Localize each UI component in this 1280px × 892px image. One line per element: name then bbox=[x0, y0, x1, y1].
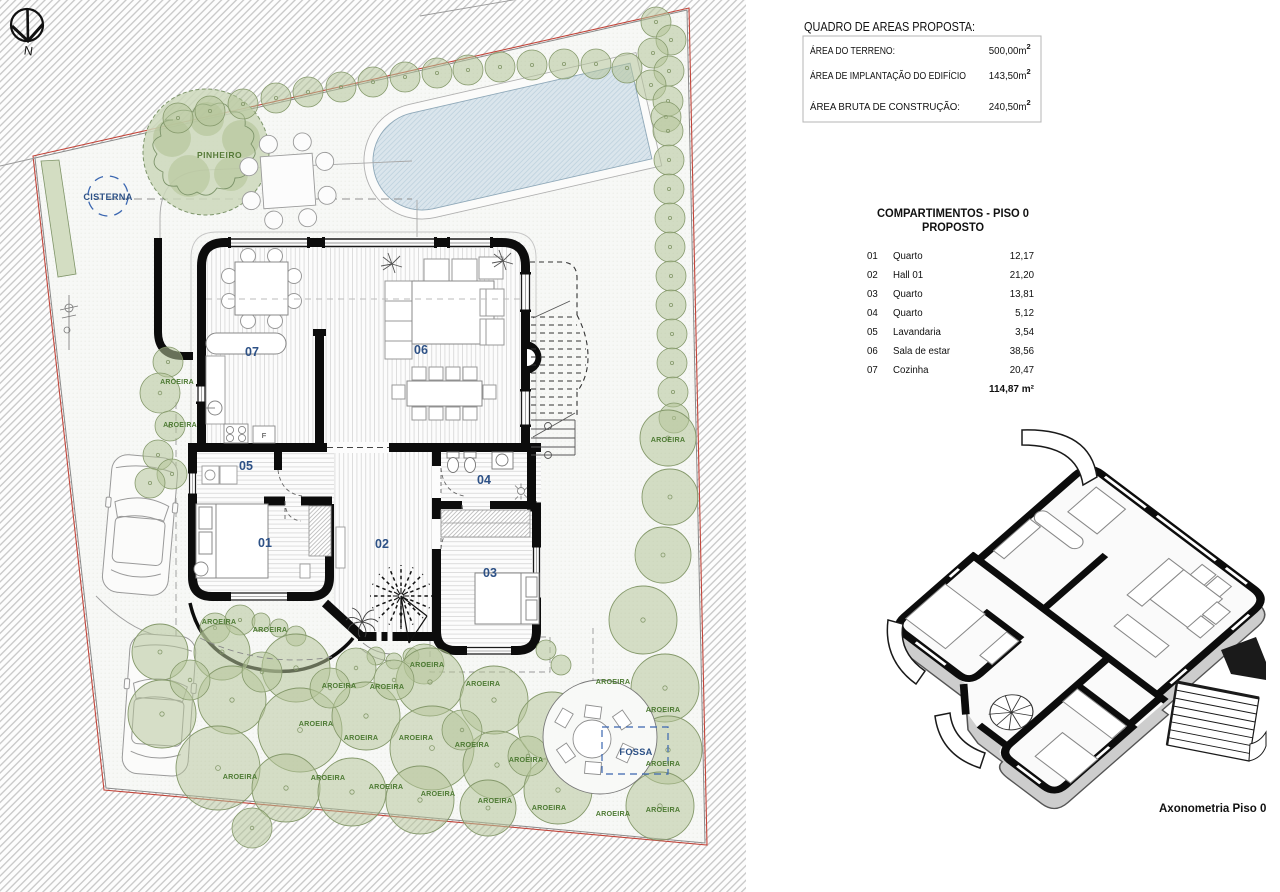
svg-text:AROEIRA: AROEIRA bbox=[596, 809, 631, 818]
svg-text:Lavandaria: Lavandaria bbox=[893, 327, 942, 338]
svg-text:Sala de estar: Sala de estar bbox=[893, 346, 951, 357]
svg-text:AROEIRA: AROEIRA bbox=[163, 422, 197, 429]
svg-text:ÁREA BRUTA DE CONSTRUÇÃO:: ÁREA BRUTA DE CONSTRUÇÃO: bbox=[810, 102, 960, 113]
svg-text:Quarto: Quarto bbox=[893, 289, 923, 300]
svg-text:PROPOSTO: PROPOSTO bbox=[922, 222, 984, 234]
svg-text:AROEIRA: AROEIRA bbox=[651, 435, 686, 444]
svg-text:AROEIRA: AROEIRA bbox=[253, 625, 288, 634]
svg-text:21,20: 21,20 bbox=[1010, 270, 1035, 281]
svg-text:38,56: 38,56 bbox=[1010, 346, 1034, 357]
svg-text:Quarto: Quarto bbox=[893, 251, 923, 262]
svg-text:AROEIRA: AROEIRA bbox=[509, 755, 544, 764]
svg-text:13,81: 13,81 bbox=[1010, 289, 1034, 300]
svg-text:FOSSA: FOSSA bbox=[619, 747, 652, 757]
svg-text:2: 2 bbox=[1027, 67, 1031, 76]
svg-text:AROEIRA: AROEIRA bbox=[344, 733, 379, 742]
svg-text:2: 2 bbox=[1027, 42, 1031, 51]
svg-text:3,54: 3,54 bbox=[1015, 327, 1034, 338]
svg-text:05: 05 bbox=[867, 327, 878, 338]
svg-text:AROEIRA: AROEIRA bbox=[455, 740, 490, 749]
svg-text:04: 04 bbox=[477, 473, 491, 487]
svg-text:03: 03 bbox=[867, 289, 878, 300]
svg-text:01: 01 bbox=[867, 251, 878, 262]
svg-text:AROEIRA: AROEIRA bbox=[410, 660, 445, 669]
svg-text:03: 03 bbox=[483, 566, 497, 580]
svg-text:QUADRO DE AREAS PROPOSTA:: QUADRO DE AREAS PROPOSTA: bbox=[804, 19, 975, 34]
svg-text:AROEIRA: AROEIRA bbox=[421, 789, 456, 798]
svg-text:143,50m: 143,50m bbox=[989, 71, 1027, 82]
svg-text:ÁREA DE IMPLANTAÇÃO DO EDIFÍCI: ÁREA DE IMPLANTAÇÃO DO EDIFÍCIO bbox=[810, 71, 966, 82]
svg-text:AROEIRA: AROEIRA bbox=[466, 679, 501, 688]
svg-text:AROEIRA: AROEIRA bbox=[399, 733, 434, 742]
svg-text:AROEIRA: AROEIRA bbox=[311, 773, 346, 782]
svg-text:12,17: 12,17 bbox=[1010, 251, 1034, 262]
svg-text:AROEIRA: AROEIRA bbox=[646, 705, 681, 714]
svg-text:AROEIRA: AROEIRA bbox=[596, 677, 631, 686]
svg-text:COMPARTIMENTOS - PISO 0: COMPARTIMENTOS - PISO 0 bbox=[877, 208, 1029, 220]
svg-text:Hall 01: Hall 01 bbox=[893, 270, 923, 281]
svg-text:2: 2 bbox=[1027, 98, 1031, 107]
svg-text:Axonometria Piso 0: Axonometria Piso 0 bbox=[1159, 803, 1266, 815]
svg-text:AROEIRA: AROEIRA bbox=[370, 682, 405, 691]
svg-text:02: 02 bbox=[867, 270, 878, 281]
svg-text:Quarto: Quarto bbox=[893, 308, 923, 319]
svg-text:114,87 m²: 114,87 m² bbox=[989, 384, 1035, 395]
svg-text:F: F bbox=[262, 431, 267, 440]
svg-text:240,50m: 240,50m bbox=[989, 102, 1027, 113]
svg-text:AROEIRA: AROEIRA bbox=[646, 759, 681, 768]
svg-text:AROEIRA: AROEIRA bbox=[160, 379, 194, 386]
svg-text:06: 06 bbox=[414, 343, 428, 357]
svg-text:AROEIRA: AROEIRA bbox=[532, 803, 567, 812]
svg-text:Cozinha: Cozinha bbox=[893, 365, 929, 376]
svg-text:500,00m: 500,00m bbox=[989, 46, 1027, 57]
svg-text:01: 01 bbox=[258, 536, 272, 550]
svg-text:05: 05 bbox=[239, 459, 253, 473]
svg-text:07: 07 bbox=[245, 345, 259, 359]
svg-text:5,12: 5,12 bbox=[1015, 308, 1034, 319]
svg-text:07: 07 bbox=[867, 365, 878, 376]
svg-text:AROEIRA: AROEIRA bbox=[202, 617, 237, 626]
svg-text:AROEIRA: AROEIRA bbox=[369, 782, 404, 791]
svg-text:AROEIRA: AROEIRA bbox=[322, 681, 357, 690]
svg-text:04: 04 bbox=[867, 308, 878, 319]
svg-text:AROEIRA: AROEIRA bbox=[646, 805, 681, 814]
svg-text:20,47: 20,47 bbox=[1010, 365, 1034, 376]
svg-text:AROEIRA: AROEIRA bbox=[478, 796, 513, 805]
svg-text:N: N bbox=[23, 44, 34, 59]
svg-text:02: 02 bbox=[375, 537, 389, 551]
svg-text:CISTERNA: CISTERNA bbox=[83, 192, 132, 202]
svg-text:PINHEIRO: PINHEIRO bbox=[197, 150, 242, 160]
svg-text:06: 06 bbox=[867, 346, 878, 357]
svg-text:AROEIRA: AROEIRA bbox=[223, 772, 258, 781]
svg-text:ÁREA DO TERRENO:: ÁREA DO TERRENO: bbox=[810, 46, 895, 57]
svg-text:AROEIRA: AROEIRA bbox=[299, 719, 334, 728]
